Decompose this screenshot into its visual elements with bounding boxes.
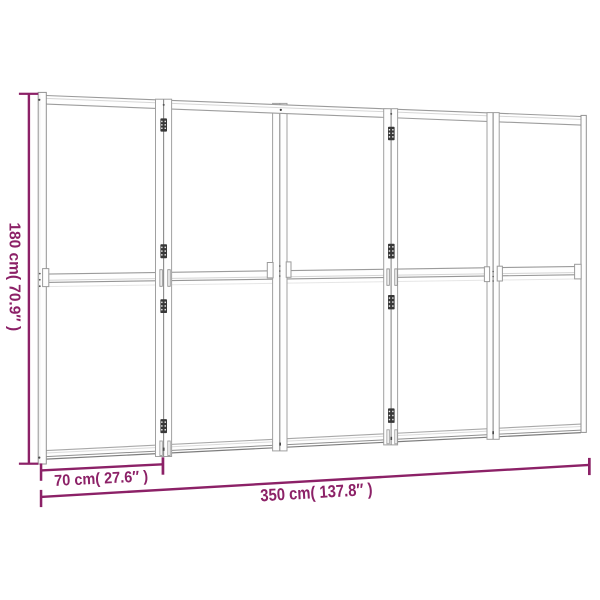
svg-text:180 cm( 70.9″ ): 180 cm( 70.9″ ) (5, 222, 22, 331)
